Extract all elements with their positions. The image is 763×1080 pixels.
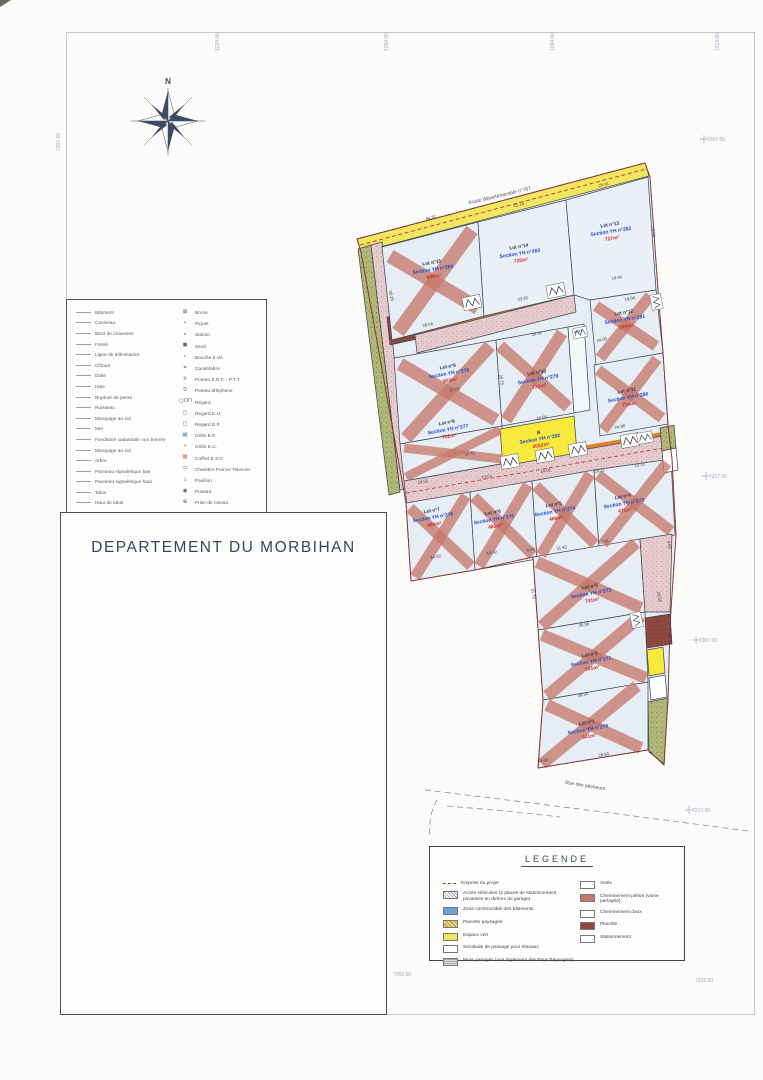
survey-symbol-icon: ▭ — [179, 466, 191, 472]
survey-legend-item: Bâtiment — [76, 307, 176, 318]
survey-legend-item-label: Marquage au sol — [95, 416, 131, 421]
legend-item-label: Espace vert — [463, 933, 488, 939]
survey-legend-item: Clôture — [76, 360, 176, 371]
survey-legend-item: ⌂ Pavillon — [179, 475, 265, 486]
rue-des-pecheurs-label: Rue des pêcheurs — [565, 780, 607, 792]
survey-legend-item-label: Pavillon — [195, 478, 212, 483]
dimension-label: 31.70 — [530, 588, 537, 600]
survey-symbol-icon: ⌂ — [179, 478, 191, 484]
legend-item: Accès véhicules (2 places de stationneme… — [443, 891, 575, 903]
legend-item: Zone constructible des bâtiments — [443, 907, 575, 915]
survey-legend-item-label: Poteau téléphone — [195, 388, 233, 393]
survey-legend-item-label: Station — [195, 332, 210, 337]
survey-symbol-icon: ◼ — [179, 343, 191, 349]
survey-legend-item: ✶ Candélabre — [179, 363, 265, 374]
linetype-sample — [76, 322, 91, 323]
survey-legend-item: Marquage au sol — [76, 445, 176, 456]
survey-legend-item: Ruisseau — [76, 402, 176, 413]
survey-legend-item: Haut de talus — [76, 498, 176, 509]
survey-legend-item-label: Fondation cadastrale non bornée — [95, 437, 166, 442]
survey-legend-item-label: Marquage au sol — [95, 448, 131, 453]
linetype-sample — [76, 312, 91, 313]
survey-legend-item-label: Mur — [95, 426, 103, 431]
survey-legend-item: Rupture de pente — [76, 392, 176, 403]
linetype-sample — [76, 460, 91, 461]
survey-legend-item-label: Regard — [195, 400, 211, 405]
survey-legend-item: Panneau signalétique haut — [76, 477, 176, 488]
legend-item-label: Placette paysagée — [463, 920, 502, 926]
linetype-sample — [76, 471, 91, 472]
survey-legend-item-label: Bord de chaussée — [95, 331, 134, 336]
survey-legend-item-label: Haie — [95, 384, 105, 389]
survey-legend-item-label: Grille E.U. — [195, 444, 217, 449]
survey-legend-item-label: Caniveau — [95, 320, 115, 325]
survey-legend-item-label: Bâtiment — [95, 310, 114, 315]
linetype-sample — [76, 397, 91, 398]
north-label: N — [165, 77, 171, 86]
survey-symbol-icon: ◉ — [179, 489, 191, 495]
survey-legend-item: ◻ Regard E.U. — [179, 408, 265, 419]
survey-legend-item: ◻ Regard E.P. — [179, 419, 265, 430]
survey-legend-item: Ligne de délimitation — [76, 349, 176, 360]
legend-swatch — [443, 933, 458, 941]
grid-coordinate-label: 1284.00 — [550, 33, 556, 51]
linetype-sample — [76, 418, 91, 419]
legend-item: Murs partagés (voir règlement des Pays P… — [443, 958, 575, 966]
yellow-cell-ext — [647, 647, 665, 676]
survey-symbol-icon: ∘ — [179, 355, 191, 361]
survey-legend-item-label: Seuil — [195, 344, 206, 349]
department-title: DEPARTEMENT DU MORBIHAN — [61, 539, 386, 557]
legend-item: Espace vert — [443, 933, 575, 941]
survey-legend-item: Fondation cadastrale non bornée — [76, 434, 176, 445]
survey-legend-item: Haie — [76, 381, 176, 392]
survey-legend-item: ∘ Bouche à clé — [179, 352, 265, 363]
grid-coordinate-label: 1224.00 — [215, 33, 221, 51]
survey-legend-left-column: Bâtiment Caniveau Bord de chaussée Fossé — [76, 307, 176, 508]
survey-legend-item-label: Fossé — [95, 342, 108, 347]
survey-legend-item: ⌾ Poteau E.D.F. - P.T.T. — [179, 374, 265, 385]
legend-swatch — [580, 881, 595, 889]
linetype-sample — [76, 407, 91, 408]
street-edges — [425, 790, 748, 838]
grid-coordinate-label: 1254.00 — [384, 33, 390, 51]
grid-coordinate-label: 7203.00 — [695, 978, 713, 984]
linetype-sample — [76, 502, 91, 503]
legend-item: Stationnement — [580, 935, 680, 943]
green-cell-right — [660, 425, 676, 451]
legend-swatch — [580, 922, 595, 930]
survey-legend-item: Talus — [76, 487, 176, 498]
survey-legend-item: Mur — [76, 424, 176, 435]
survey-legend-item-label: Borne — [195, 310, 208, 315]
scanned-plan-page: N — [0, 0, 763, 1080]
survey-legend-item-label: Grille E.P. — [195, 433, 216, 438]
survey-legend-item: Arbre — [76, 455, 176, 466]
title-block: DEPARTEMENT DU MORBIHAN — [60, 512, 387, 1015]
legend-item-label: Cheminement piéton (voirie partagée) — [600, 894, 680, 906]
survey-legend-item: Marquage au sol — [76, 413, 176, 424]
grid-coordinate-label: 7207.00 — [707, 137, 725, 143]
legend-swatch — [580, 935, 595, 943]
survey-symbol-icon: ✶ — [179, 366, 191, 372]
linetype-sample — [76, 386, 91, 387]
placette-ext — [645, 614, 672, 648]
legend-item-label: Voirie — [600, 881, 612, 887]
survey-legend-item-label: Candélabre — [195, 366, 220, 371]
survey-legend-item: Panneau signalétique bas — [76, 466, 176, 477]
legend-item: Cheminement doux — [580, 910, 680, 918]
survey-legend-item-label: Puisard — [195, 489, 211, 494]
survey-legend-item: ▦ Grille E.P. — [179, 430, 265, 441]
survey-legend-item: ▩ Coffret E.D.F. — [179, 452, 265, 463]
survey-symbol-icon: ◻O⊓ — [179, 399, 191, 405]
survey-legend-item: Bord de chaussée — [76, 328, 176, 339]
survey-legend-item: ▵ Station — [179, 329, 265, 340]
survey-symbol-icon: ◻ — [179, 422, 191, 428]
grid-coordinate-label: 7207.00 — [56, 133, 62, 151]
survey-symbol-icon: ⌾ — [179, 377, 191, 383]
legend-item-label: Accès véhicules (2 places de stationneme… — [463, 891, 575, 903]
survey-legend-item-label: Ruisseau — [95, 405, 115, 410]
legend-item: Servitude de passage pour réseaux — [443, 945, 575, 953]
survey-legend-item: ⍉ Poteau téléphone — [179, 385, 265, 396]
survey-symbol-legend: Bâtiment Caniveau Bord de chaussée Fossé — [66, 299, 267, 514]
survey-legend-item-label: Regard E.U. — [195, 411, 221, 416]
legend-swatch — [443, 891, 458, 899]
survey-legend-item: ▭ Chambre France Telecom — [179, 464, 265, 475]
survey-legend-item-label: Bouche à clé — [195, 355, 223, 360]
survey-legend-item-label: Piquet — [195, 321, 209, 326]
survey-legend-item-label: Dalle — [95, 373, 106, 378]
white-cells-ext — [649, 675, 667, 700]
survey-legend-item-label: Coffret E.D.F. — [195, 456, 224, 461]
grid-coordinate-label: 7217.00 — [709, 474, 727, 480]
survey-legend-right-column: ⊠ Borne • Piquet ▵ Station ◼ Seuil — [179, 307, 265, 508]
survey-legend-item: ◼ Seuil — [179, 341, 265, 352]
survey-legend-item: Dalle — [76, 371, 176, 382]
linetype-sample — [76, 428, 91, 429]
grid-coordinate-label: 7263.00 — [393, 972, 411, 978]
survey-legend-item: ⊕ Prise de niveau — [179, 497, 265, 508]
grid-coordinate-label: 7217.00 — [692, 808, 710, 814]
legend-item-label: Placette — [600, 922, 617, 928]
linetype-sample — [76, 365, 91, 366]
legend-item: Cheminement piéton (voirie partagée) — [580, 894, 680, 906]
survey-legend-item-label: Arbre — [95, 458, 107, 463]
linetype-sample — [76, 333, 91, 334]
survey-legend-item-label: Panneau signalétique bas — [95, 469, 150, 474]
legend-swatch — [443, 958, 458, 966]
survey-legend-item-label: Chambre France Telecom — [195, 467, 250, 472]
survey-symbol-icon: ▩ — [179, 455, 191, 461]
survey-symbol-icon: ◻ — [179, 411, 191, 417]
survey-legend-item-label: Haut de talus — [95, 500, 123, 505]
survey-legend-item: • Piquet — [179, 318, 265, 329]
legend-swatch — [580, 894, 595, 902]
linetype-sample — [76, 492, 91, 493]
survey-legend-item: Fossé — [76, 339, 176, 350]
linetype-sample — [76, 375, 91, 376]
legend-swatch — [443, 945, 458, 953]
linetype-sample — [76, 344, 91, 345]
legend-swatch — [443, 883, 456, 884]
legend-item: Voirie — [580, 881, 680, 889]
legend-item-label: Cheminement doux — [600, 910, 642, 916]
legend-item: Placette — [580, 922, 680, 930]
legend-title: LEGENDE — [521, 854, 593, 867]
survey-symbol-icon: • — [179, 321, 191, 327]
legend-swatch — [443, 907, 458, 915]
survey-legend-item-label: Panneau signalétique haut — [95, 479, 152, 484]
survey-symbol-icon: ⊠ — [179, 310, 191, 316]
legend-item-label: Emprise du projet — [461, 881, 499, 887]
legend-item-label: Stationnement — [600, 935, 631, 941]
survey-legend-item-label: Prise de niveau — [195, 500, 228, 505]
survey-symbol-icon: ⊕ — [179, 500, 191, 506]
survey-legend-item: ⊠ Borne — [179, 307, 265, 318]
legend-swatch — [443, 920, 458, 928]
survey-legend-item-label: Talus — [95, 490, 106, 495]
survey-symbol-icon: ▦ — [179, 433, 191, 439]
linetype-sample — [76, 481, 91, 482]
survey-legend-item: ÷ Grille E.U. — [179, 441, 265, 452]
survey-legend-item-label: Ligne de délimitation — [95, 352, 139, 357]
grid-coordinate-label: 7207.00 — [699, 638, 717, 644]
legend-item-label: Zone constructible des bâtiments — [463, 907, 533, 913]
survey-symbol-icon: ⍉ — [179, 388, 191, 394]
linetype-sample — [76, 354, 91, 355]
legend-right-column: Voirie Cheminement piéton (voirie partag… — [580, 881, 680, 947]
survey-legend-item-label: Regard E.P. — [195, 422, 221, 427]
linetype-sample — [76, 439, 91, 440]
legend-item-label: Servitude de passage pour réseaux — [463, 945, 539, 951]
survey-legend-item: ◉ Puisard — [179, 486, 265, 497]
survey-legend-item-label: Rupture de pente — [95, 395, 132, 400]
compass-rose: N — [131, 77, 205, 155]
linetype-sample — [76, 450, 91, 451]
legend-item-label: Murs partagés (voir règlement des Pays P… — [463, 958, 574, 964]
survey-legend-item-label: Clôture — [95, 363, 111, 368]
survey-symbol-icon: ▵ — [179, 332, 191, 338]
survey-legend-item: ◻O⊓ Regard — [179, 397, 265, 408]
legend-left-column: Emprise du projet Accès véhicules (2 pla… — [443, 881, 575, 970]
legend-swatch — [580, 910, 595, 918]
legend-item: Emprise du projet — [443, 881, 575, 887]
survey-symbol-icon: ÷ — [179, 444, 191, 450]
survey-legend-item: Caniveau — [76, 318, 176, 329]
survey-legend-item-label: Poteau E.D.F. - P.T.T. — [195, 377, 241, 382]
grid-coordinate-label: 1314.00 — [715, 33, 721, 51]
legend-item: Placette paysagée — [443, 920, 575, 928]
legend-box: LEGENDE Emprise du projet Accès véhicule… — [429, 846, 685, 961]
